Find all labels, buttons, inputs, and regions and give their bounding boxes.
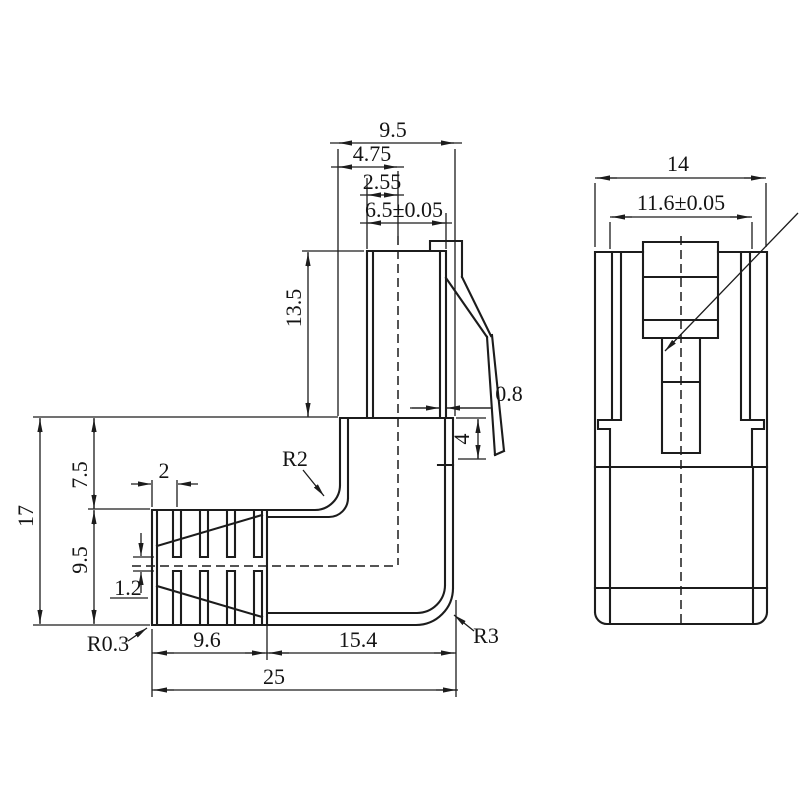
dim-label-radius-outer: R3 xyxy=(473,623,499,648)
drawing-page: 9.5 4.75 2.55 6.5±0.05 13.5 17 7.5 9.5 2… xyxy=(0,0,800,800)
dim-label-overall-width: 14 xyxy=(667,151,689,176)
front-view-dimension-labels: 14 11.6±0.05 xyxy=(637,151,725,215)
dim-label-plug-height: 13.5 xyxy=(281,289,306,328)
dim-label-overall-height: 17 xyxy=(13,505,38,527)
dim-label-rib-pitch: 2 xyxy=(159,458,170,483)
dim-label-latch-drop: 4 xyxy=(449,434,474,445)
dim-label-boot-length: 9.6 xyxy=(193,627,221,652)
dim-label-upper-height: 7.5 xyxy=(67,461,92,489)
dim-label-radius-inner: R2 xyxy=(282,446,308,471)
dim-label-opening-width: 11.6±0.05 xyxy=(637,190,725,215)
dim-label-body-length: 15.4 xyxy=(339,627,378,652)
technical-drawing: 9.5 4.75 2.55 6.5±0.05 13.5 17 7.5 9.5 2… xyxy=(0,0,800,800)
dim-label-center-to-edge: 2.55 xyxy=(363,169,402,194)
dim-label-plug-width: 6.5±0.05 xyxy=(365,197,443,222)
dim-label-top-width: 9.5 xyxy=(379,117,407,142)
dim-label-overall-length: 25 xyxy=(263,664,285,689)
side-view-plug-outline xyxy=(152,241,504,625)
front-view: 14 11.6±0.05 xyxy=(595,151,798,624)
side-view-centerlines xyxy=(132,236,398,566)
dim-label-half-width: 4.75 xyxy=(353,141,392,166)
dim-label-latch-thickness: 0.8 xyxy=(495,381,523,406)
dim-label-boot-height: 9.5 xyxy=(67,546,92,574)
dim-label-radius-boot: R0.3 xyxy=(87,631,129,656)
side-view: 9.5 4.75 2.55 6.5±0.05 13.5 17 7.5 9.5 2… xyxy=(13,117,523,697)
dim-label-rib-gap: 1.2 xyxy=(114,575,142,600)
